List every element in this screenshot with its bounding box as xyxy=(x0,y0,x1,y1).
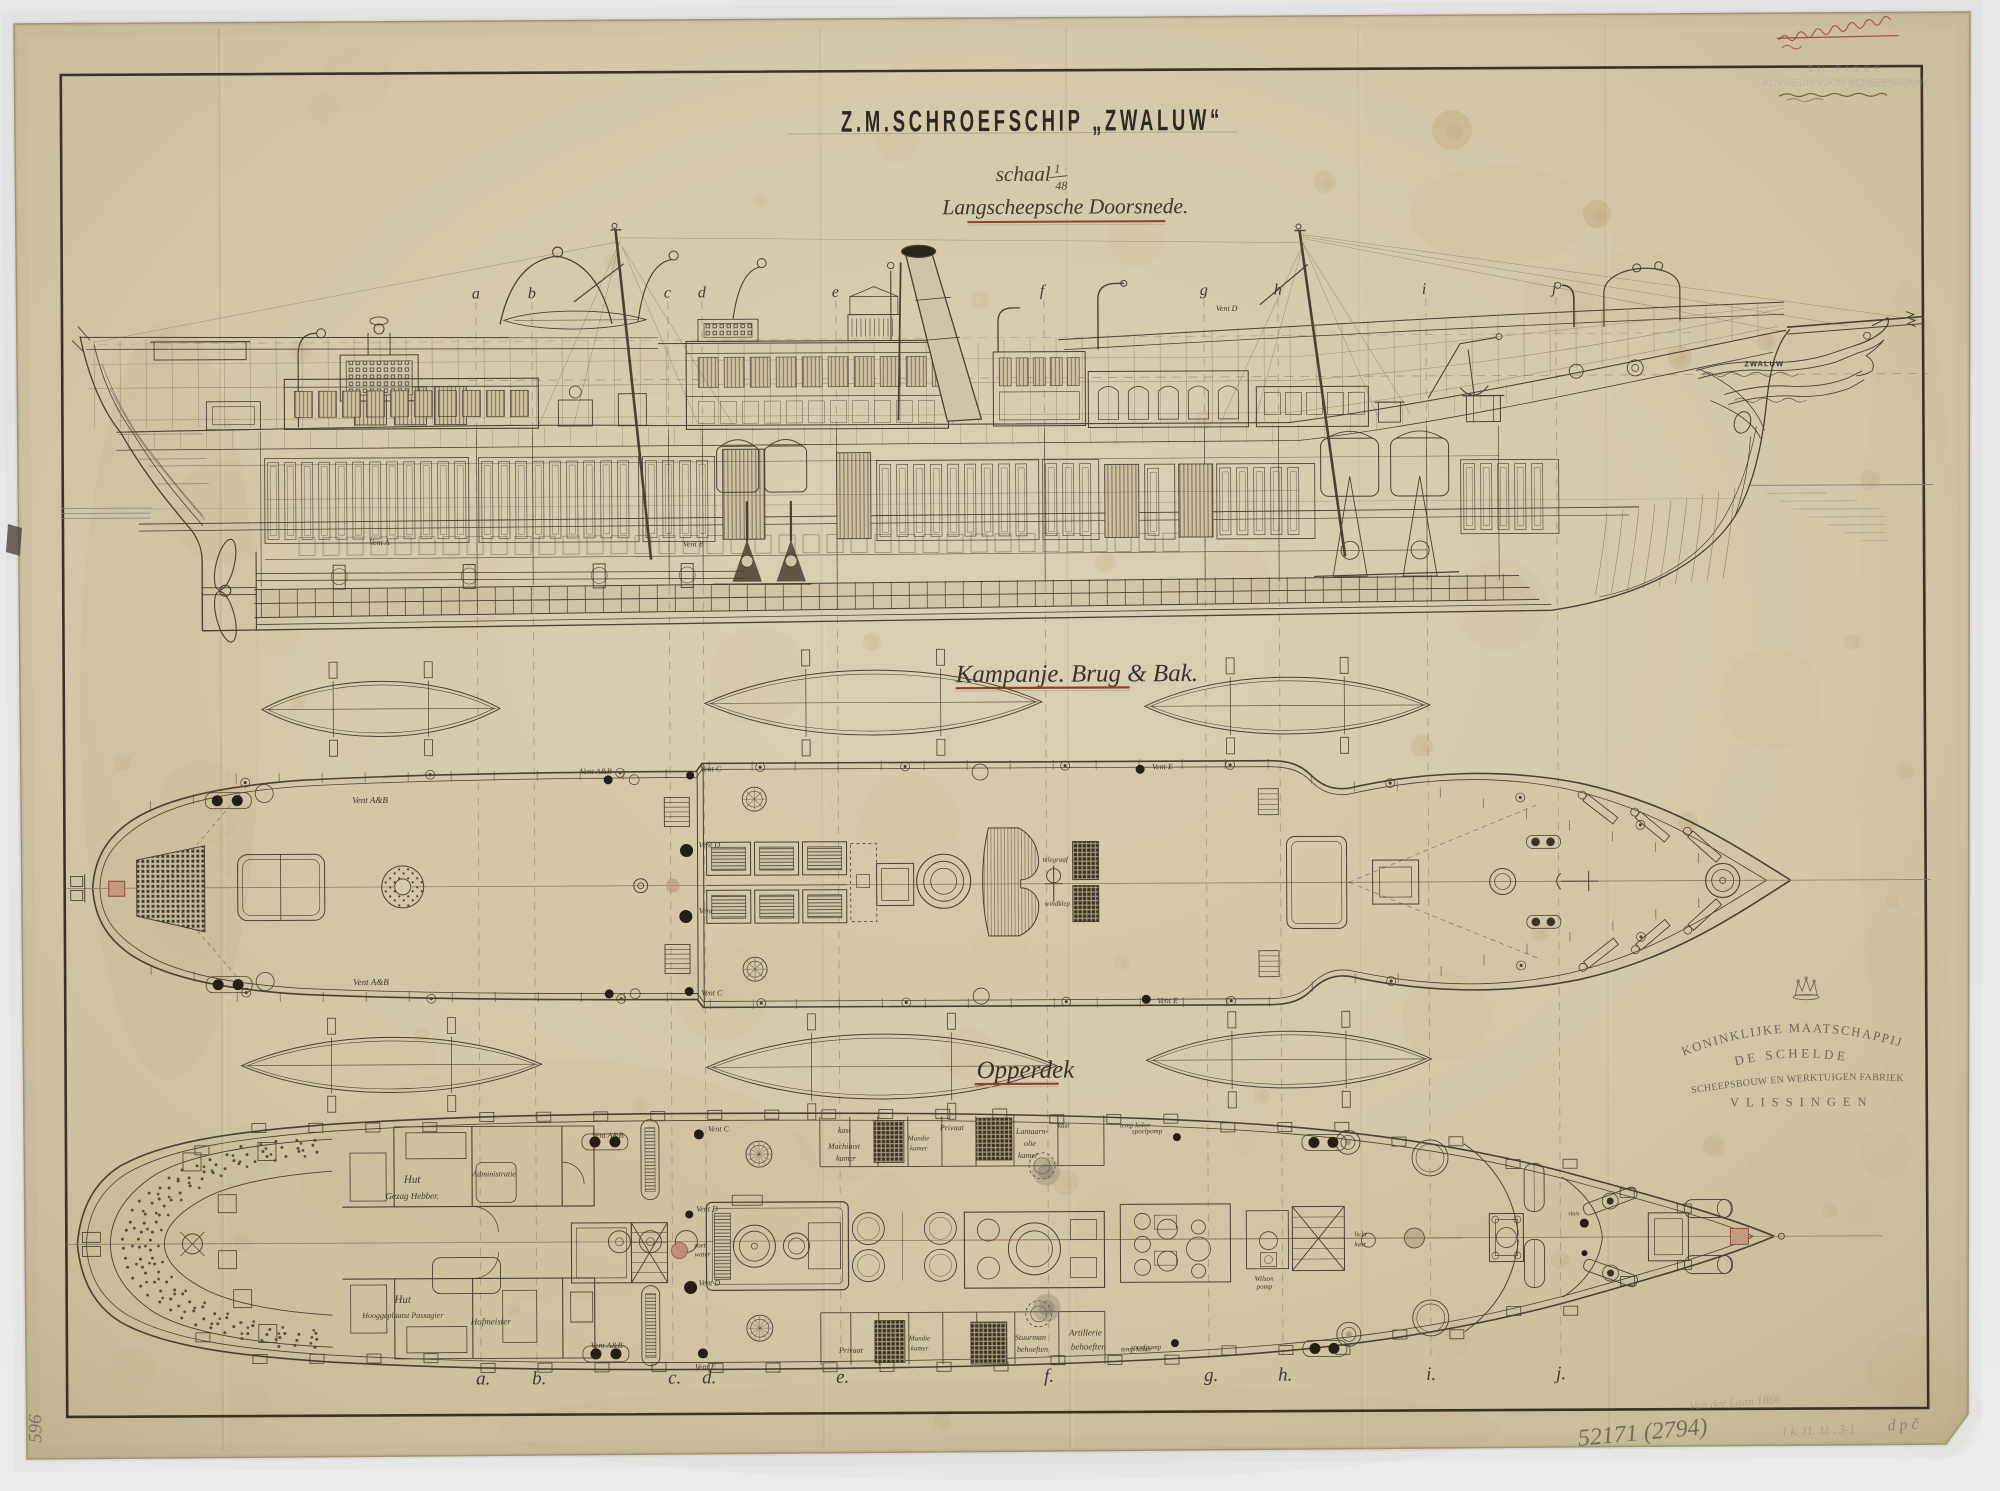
svg-text:T H . F I G E E: T H . F I G E E xyxy=(1808,64,1882,74)
svg-text:zoet: zoet xyxy=(693,1241,706,1249)
svg-text:behoeften: behoeften xyxy=(1017,1345,1048,1354)
svg-text:Vent C: Vent C xyxy=(708,1124,730,1133)
svg-text:e: e xyxy=(832,284,839,301)
svg-text:Administratie: Administratie xyxy=(471,1169,516,1178)
svg-text:g: g xyxy=(1200,282,1208,299)
svg-text:a: a xyxy=(472,285,480,302)
svg-text:1 k. 11. 11 . 3-1: 1 k. 11. 11 . 3-1 xyxy=(1781,1422,1855,1439)
svg-text:sluis: sluis xyxy=(1568,1211,1580,1217)
svg-text:a.: a. xyxy=(476,1368,490,1389)
svg-text:Hut: Hut xyxy=(393,1294,412,1306)
svg-text:Vent E: Vent E xyxy=(1152,762,1173,771)
svg-text:kast: kast xyxy=(1354,1240,1366,1248)
svg-text:kamer: kamer xyxy=(836,1154,857,1163)
svg-text:e.: e. xyxy=(836,1367,849,1388)
svg-text:b.: b. xyxy=(532,1368,546,1389)
svg-text:schaal: schaal xyxy=(996,162,1051,186)
svg-text:Vent A: Vent A xyxy=(369,538,390,547)
svg-text:Vent D: Vent D xyxy=(1216,304,1238,313)
svg-text:g.: g. xyxy=(1204,1365,1218,1386)
svg-text:d: d xyxy=(698,284,707,301)
svg-text:kast: kast xyxy=(1058,1122,1070,1130)
svg-text:ADVISEUR VOOR SCHEEPSBOUW: ADVISEUR VOOR SCHEEPSBOUW xyxy=(1762,77,1928,89)
svg-text:licht: licht xyxy=(1354,1230,1368,1238)
svg-text:Hofmeister: Hofmeister xyxy=(470,1316,512,1326)
svg-text:VLISSINGEN: VLISSINGEN xyxy=(1730,1095,1874,1110)
svg-text:spoelpomp: spoelpomp xyxy=(1131,1343,1162,1351)
svg-text:Vent A&B: Vent A&B xyxy=(580,767,612,776)
svg-text:Vent A&B: Vent A&B xyxy=(352,795,388,805)
svg-text:596: 596 xyxy=(25,1414,46,1443)
svg-text:windklep: windklep xyxy=(1045,900,1071,908)
svg-text:d p č: d p č xyxy=(1887,1416,1920,1435)
svg-text:kamer: kamer xyxy=(911,1344,929,1352)
svg-text:pomp: pomp xyxy=(1256,1283,1273,1291)
svg-text:water: water xyxy=(694,1250,710,1258)
svg-text:Privaat: Privaat xyxy=(838,1346,864,1355)
svg-text:kamer: kamer xyxy=(910,1144,928,1152)
svg-text:Langscheepsche Doorsnede.: Langscheepsche Doorsnede. xyxy=(941,194,1188,219)
svg-text:h.: h. xyxy=(1278,1365,1292,1386)
svg-text:1: 1 xyxy=(1054,162,1060,176)
svg-text:behoeften: behoeften xyxy=(1071,1341,1107,1351)
svg-text:Machinist: Machinist xyxy=(827,1142,861,1151)
svg-text:Vent C: Vent C xyxy=(701,988,723,997)
svg-text:Vent A&B: Vent A&B xyxy=(353,977,389,987)
svg-text:b: b xyxy=(528,285,536,302)
svg-text:Opperdek: Opperdek xyxy=(977,1057,1076,1084)
svg-text:c.: c. xyxy=(668,1368,681,1389)
svg-text:Gezag Hebber.: Gezag Hebber. xyxy=(385,1191,439,1201)
svg-text:Wilson: Wilson xyxy=(1255,1275,1275,1283)
svg-text:c: c xyxy=(664,285,671,302)
svg-text:48: 48 xyxy=(1055,179,1067,193)
svg-text:kamer: kamer xyxy=(1018,1151,1039,1160)
svg-text:Vent C: Vent C xyxy=(700,764,722,773)
svg-text:Mandie: Mandie xyxy=(907,1134,929,1142)
svg-text:Vent D: Vent D xyxy=(699,1278,721,1287)
svg-text:Hut: Hut xyxy=(403,1174,422,1186)
svg-text:ZWALUW: ZWALUW xyxy=(1744,359,1784,368)
svg-text:olie: olie xyxy=(1024,1139,1036,1148)
svg-text:Mandie: Mandie xyxy=(908,1334,930,1342)
svg-text:telegraaf: telegraaf xyxy=(1043,856,1069,864)
svg-text:Vent E: Vent E xyxy=(1157,996,1178,1005)
svg-text:Lantaarn-: Lantaarn- xyxy=(1015,1127,1049,1136)
svg-text:Stuurman: Stuurman xyxy=(1015,1333,1046,1342)
svg-text:f.: f. xyxy=(1044,1366,1054,1387)
svg-text:Privaat: Privaat xyxy=(939,1123,965,1132)
svg-text:Vent B: Vent B xyxy=(683,539,704,548)
svg-text:i.: i. xyxy=(1426,1364,1436,1385)
svg-text:spoelpomp: spoelpomp xyxy=(1132,1127,1163,1135)
svg-text:kast: kast xyxy=(838,1126,852,1135)
svg-text:i: i xyxy=(1422,281,1427,298)
svg-text:Z.M.SCHROEFSCHIP „ZWALUW“: Z.M.SCHROEFSCHIP „ZWALUW“ xyxy=(841,104,1223,139)
svg-text:Vent E.: Vent E. xyxy=(695,1362,718,1371)
svg-text:Artillerie: Artillerie xyxy=(1068,1327,1102,1337)
svg-text:Hooggeplaatst Passagier: Hooggeplaatst Passagier xyxy=(361,1311,444,1320)
